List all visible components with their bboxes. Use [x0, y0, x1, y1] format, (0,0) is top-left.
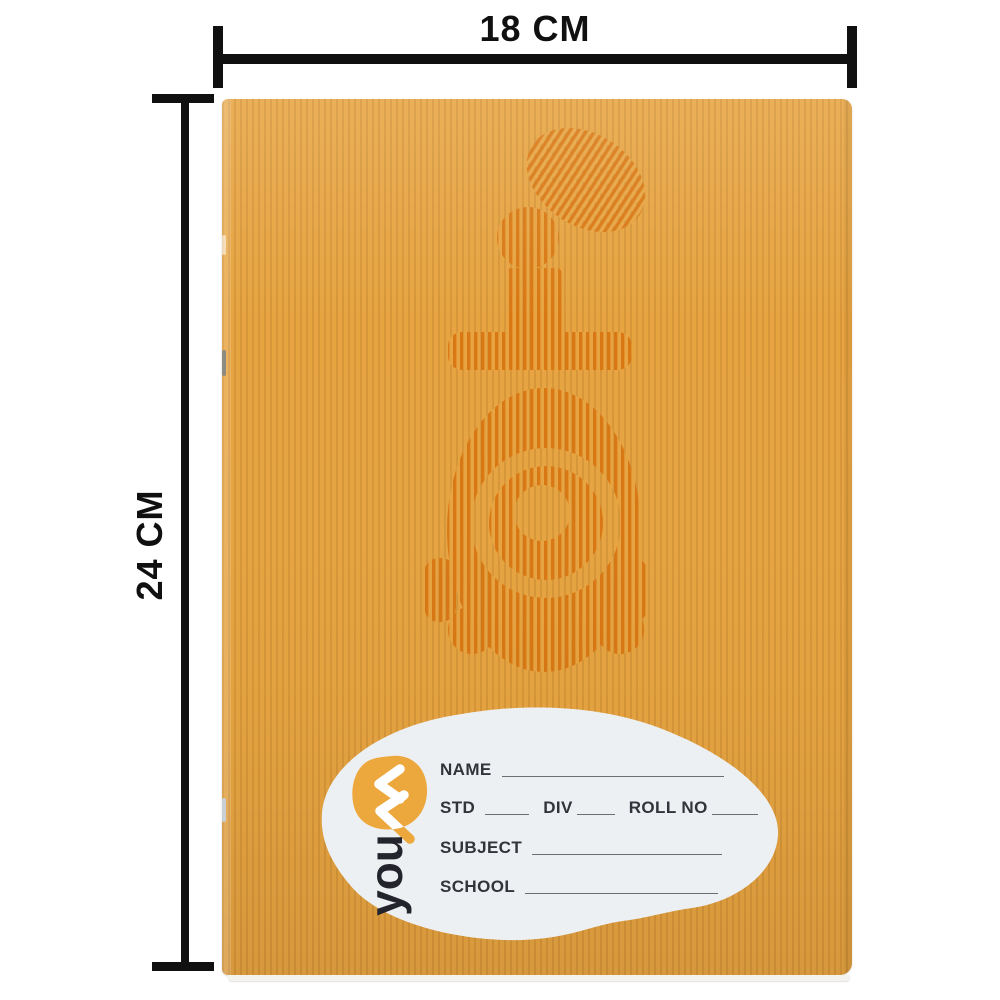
height-measurement-line — [181, 98, 189, 971]
spine-highlight — [222, 99, 231, 975]
staple-bottom-icon — [222, 798, 226, 822]
subject-field-line — [532, 852, 722, 855]
school-field-label: SCHOOL — [440, 878, 515, 895]
name-field-line — [502, 774, 724, 777]
height-measurement-endcap-bottom — [152, 962, 214, 971]
youva-wordmark: you — [354, 809, 418, 941]
title-label: you NAME STD DIV ROLL NO SUBJECT SCHOOL — [320, 703, 780, 943]
height-measurement-label: 24 CM — [90, 465, 210, 625]
school-field-row: SCHOOL — [440, 878, 718, 895]
pages-edge — [228, 975, 850, 981]
width-measurement-endcap-right — [847, 26, 857, 88]
youva-logo: you — [338, 751, 438, 921]
notebook-cover: you NAME STD DIV ROLL NO SUBJECT SCHOOL — [222, 99, 852, 975]
height-measurement-endcap-top — [152, 94, 214, 103]
div-field-label: DIV — [543, 799, 573, 816]
rollno-field-line — [712, 812, 758, 815]
staple-top-icon — [222, 350, 226, 376]
rollno-field-label: ROLL NO — [629, 799, 708, 816]
name-field-label: NAME — [440, 761, 492, 778]
spine-scratch — [222, 235, 226, 255]
name-field-row: NAME — [440, 761, 724, 778]
width-measurement-label: 18 CM — [435, 8, 635, 50]
div-field-line — [577, 812, 615, 815]
subject-field-row: SUBJECT — [440, 839, 722, 856]
std-field-label: STD — [440, 799, 475, 816]
std-div-rollno-row: STD DIV ROLL NO — [440, 799, 758, 816]
right-edge-shade — [844, 99, 852, 975]
width-measurement-line — [218, 54, 852, 64]
width-measurement-endcap-left — [213, 26, 223, 88]
subject-field-label: SUBJECT — [440, 839, 522, 856]
std-field-line — [485, 812, 529, 815]
product-photo: 18 CM 24 CM — [0, 0, 1000, 1000]
school-field-line — [525, 891, 718, 894]
